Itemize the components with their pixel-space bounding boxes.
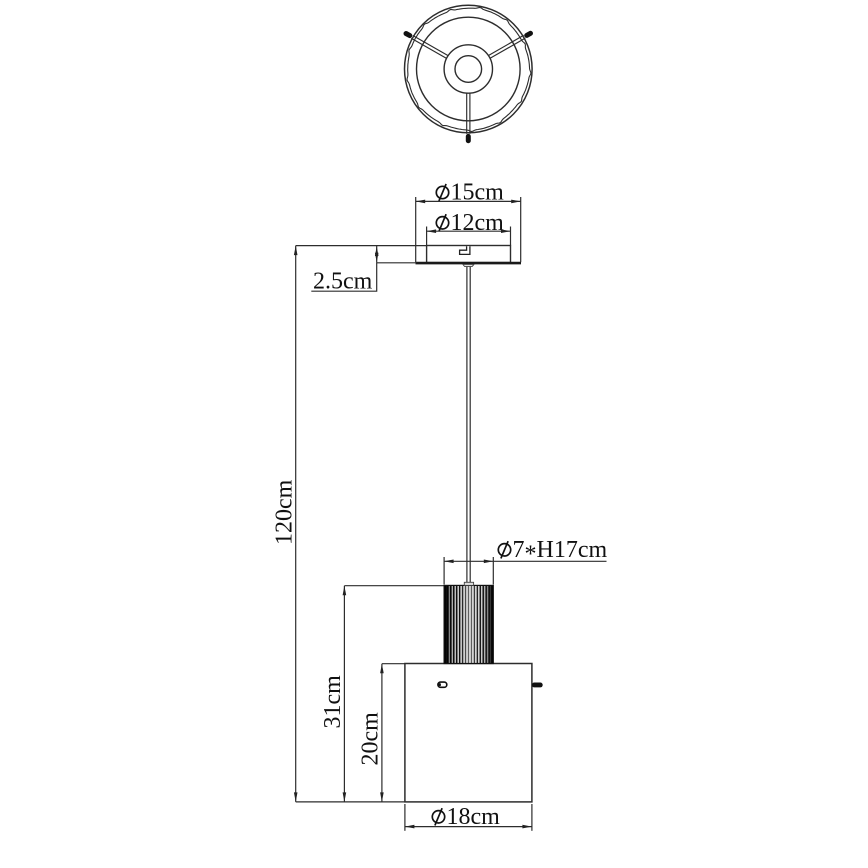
svg-text:12cm: 12cm xyxy=(451,210,505,236)
svg-text:120cm: 120cm xyxy=(272,479,298,545)
svg-text:7*H17cm: 7*H17cm xyxy=(513,537,608,568)
svg-text:20cm: 20cm xyxy=(358,712,384,766)
svg-text:2.5cm: 2.5cm xyxy=(313,269,373,295)
svg-text:31cm: 31cm xyxy=(320,675,346,729)
svg-text:18cm: 18cm xyxy=(447,804,501,830)
